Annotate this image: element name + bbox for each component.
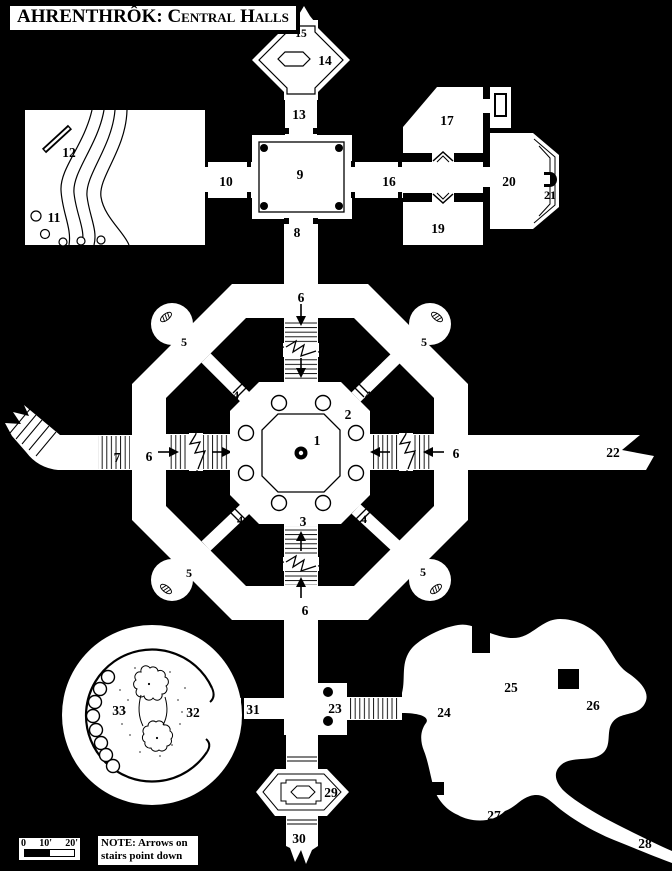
- label-stairs-6-s: 6: [302, 603, 309, 618]
- label-passage-4-ne: 4: [365, 388, 371, 402]
- label-corridor-8: 8: [294, 225, 301, 240]
- rotunda-32: [62, 625, 242, 805]
- label-barrels-33: 33: [112, 703, 126, 718]
- label-cave-25: 25: [504, 680, 518, 695]
- label-room-9: 9: [297, 167, 304, 182]
- label-passage-4-se: 4: [361, 512, 367, 526]
- door-jamb: [284, 218, 289, 224]
- label-stairs-6-w: 6: [146, 449, 153, 464]
- corridor-31: [238, 698, 286, 719]
- label-area-11: 11: [48, 210, 61, 225]
- door-jamb: [351, 161, 355, 167]
- scale-tick-20: 20': [65, 838, 78, 849]
- label-room-29: 29: [324, 785, 338, 800]
- label-room-3: 3: [300, 514, 307, 529]
- label-cave-26: 26: [586, 698, 600, 713]
- altar-hexagon: [278, 52, 310, 66]
- well-circle: [77, 237, 85, 245]
- cave-pillar: [424, 782, 444, 795]
- label-rotunda-32: 32: [186, 705, 200, 720]
- corridor-8: [284, 218, 318, 286]
- cave-pillar: [558, 669, 579, 689]
- dungeon-map-page: 1 2 3 4 4 4 4 5 5 5 5 6 6 6 6 7 8 9 10 1…: [0, 0, 672, 871]
- label-stairs-6-n: 6: [298, 290, 305, 305]
- label-cave-27: 27: [487, 808, 501, 823]
- scale-tick-10: 10': [39, 838, 52, 849]
- dungeon-map: 1 2 3 4 4 4 4 5 5 5 5 6 6 6 6 7 8 9 10 1…: [0, 0, 672, 871]
- label-room-20: 20: [502, 174, 516, 189]
- label-passage-4-sw: 4: [237, 513, 243, 527]
- pillar: [323, 687, 333, 697]
- label-corridor-7: 7: [114, 450, 121, 465]
- pillar: [260, 202, 268, 210]
- label-corridor-16: 16: [382, 174, 396, 189]
- label-node-5-nw: 5: [181, 335, 187, 349]
- label-room-1: 1: [314, 433, 321, 448]
- well-circle: [97, 236, 105, 244]
- door-jamb: [284, 128, 289, 134]
- node-5-ne: [409, 303, 451, 345]
- label-corridor-10: 10: [219, 174, 233, 189]
- secret-door-gap: [432, 192, 454, 203]
- map-title: AHRENTHRÔK: Central Halls: [8, 4, 298, 32]
- scale-tick-0: 0: [21, 838, 26, 849]
- cave-pillar: [472, 625, 490, 653]
- well-circle: [41, 230, 50, 239]
- scale-bar-graphic: [24, 849, 75, 857]
- hall-11-12: [25, 110, 205, 246]
- pillar: [335, 202, 343, 210]
- note-box: NOTE: Arrows on stairs point down: [97, 835, 199, 866]
- label-stairs-6-e: 6: [453, 446, 460, 461]
- label-corridor-22: 22: [606, 445, 620, 460]
- scale-bar: 0 10' 20': [18, 837, 81, 861]
- speck: [156, 737, 158, 739]
- door-jamb: [398, 192, 402, 198]
- map-title-name: AHRENTHRÔK:: [17, 6, 163, 27]
- label-room-14: 14: [318, 53, 332, 68]
- label-bridge-12: 12: [62, 145, 76, 160]
- label-node-5-ne: 5: [421, 335, 427, 349]
- door-jamb: [313, 218, 318, 224]
- scale-bar-black-segment: [25, 850, 50, 856]
- pillar: [335, 144, 343, 152]
- door-jamb: [247, 161, 251, 167]
- label-passage-4-nw: 4: [233, 388, 239, 402]
- label-throne-21: 21: [544, 188, 556, 202]
- stairs-to-cave-hatch: [349, 698, 400, 719]
- note-line-1: NOTE: Arrows on: [101, 837, 195, 850]
- speck: [148, 683, 150, 685]
- label-corridor-31: 31: [246, 702, 260, 717]
- door-jamb: [351, 192, 355, 198]
- door-gap: [482, 99, 491, 113]
- label-cave-24: 24: [437, 705, 451, 720]
- door-jamb: [313, 128, 318, 134]
- throne-seat: [544, 175, 550, 184]
- pillar: [260, 144, 268, 152]
- corridor-between-17-19: [403, 162, 483, 193]
- room-20-throne-hall: [490, 133, 559, 229]
- secret-door-gap: [432, 152, 454, 163]
- corridor-23-south: [286, 735, 318, 769]
- corridor-south-exit: [284, 620, 318, 684]
- well-circle: [59, 238, 67, 246]
- scale-ticks: 0 10' 20': [21, 838, 78, 849]
- label-node-5-se: 5: [420, 565, 426, 579]
- label-room-17: 17: [440, 113, 454, 128]
- door-jamb: [247, 192, 251, 198]
- pillar: [323, 716, 333, 726]
- label-junction-23: 23: [328, 701, 342, 716]
- label-corridor-13: 13: [292, 107, 306, 122]
- central-dais-dot-center: [299, 451, 303, 455]
- label-room-19: 19: [431, 221, 445, 236]
- well-circle: [31, 211, 41, 221]
- small-room: [490, 87, 511, 128]
- label-corridor-30: 30: [292, 831, 306, 846]
- chest-icon: [495, 94, 506, 116]
- scale-bar-white-segment: [50, 850, 75, 856]
- note-line-2: stairs point down: [101, 850, 195, 863]
- label-passage-28: 28: [638, 836, 652, 851]
- node-5-se: [409, 559, 451, 601]
- label-node-5-sw: 5: [186, 566, 192, 580]
- corridor-22: [468, 435, 654, 470]
- door-jamb: [398, 161, 402, 167]
- map-title-subtitle: Central Halls: [167, 6, 288, 27]
- label-room-2: 2: [345, 407, 352, 422]
- door-gap: [482, 167, 491, 187]
